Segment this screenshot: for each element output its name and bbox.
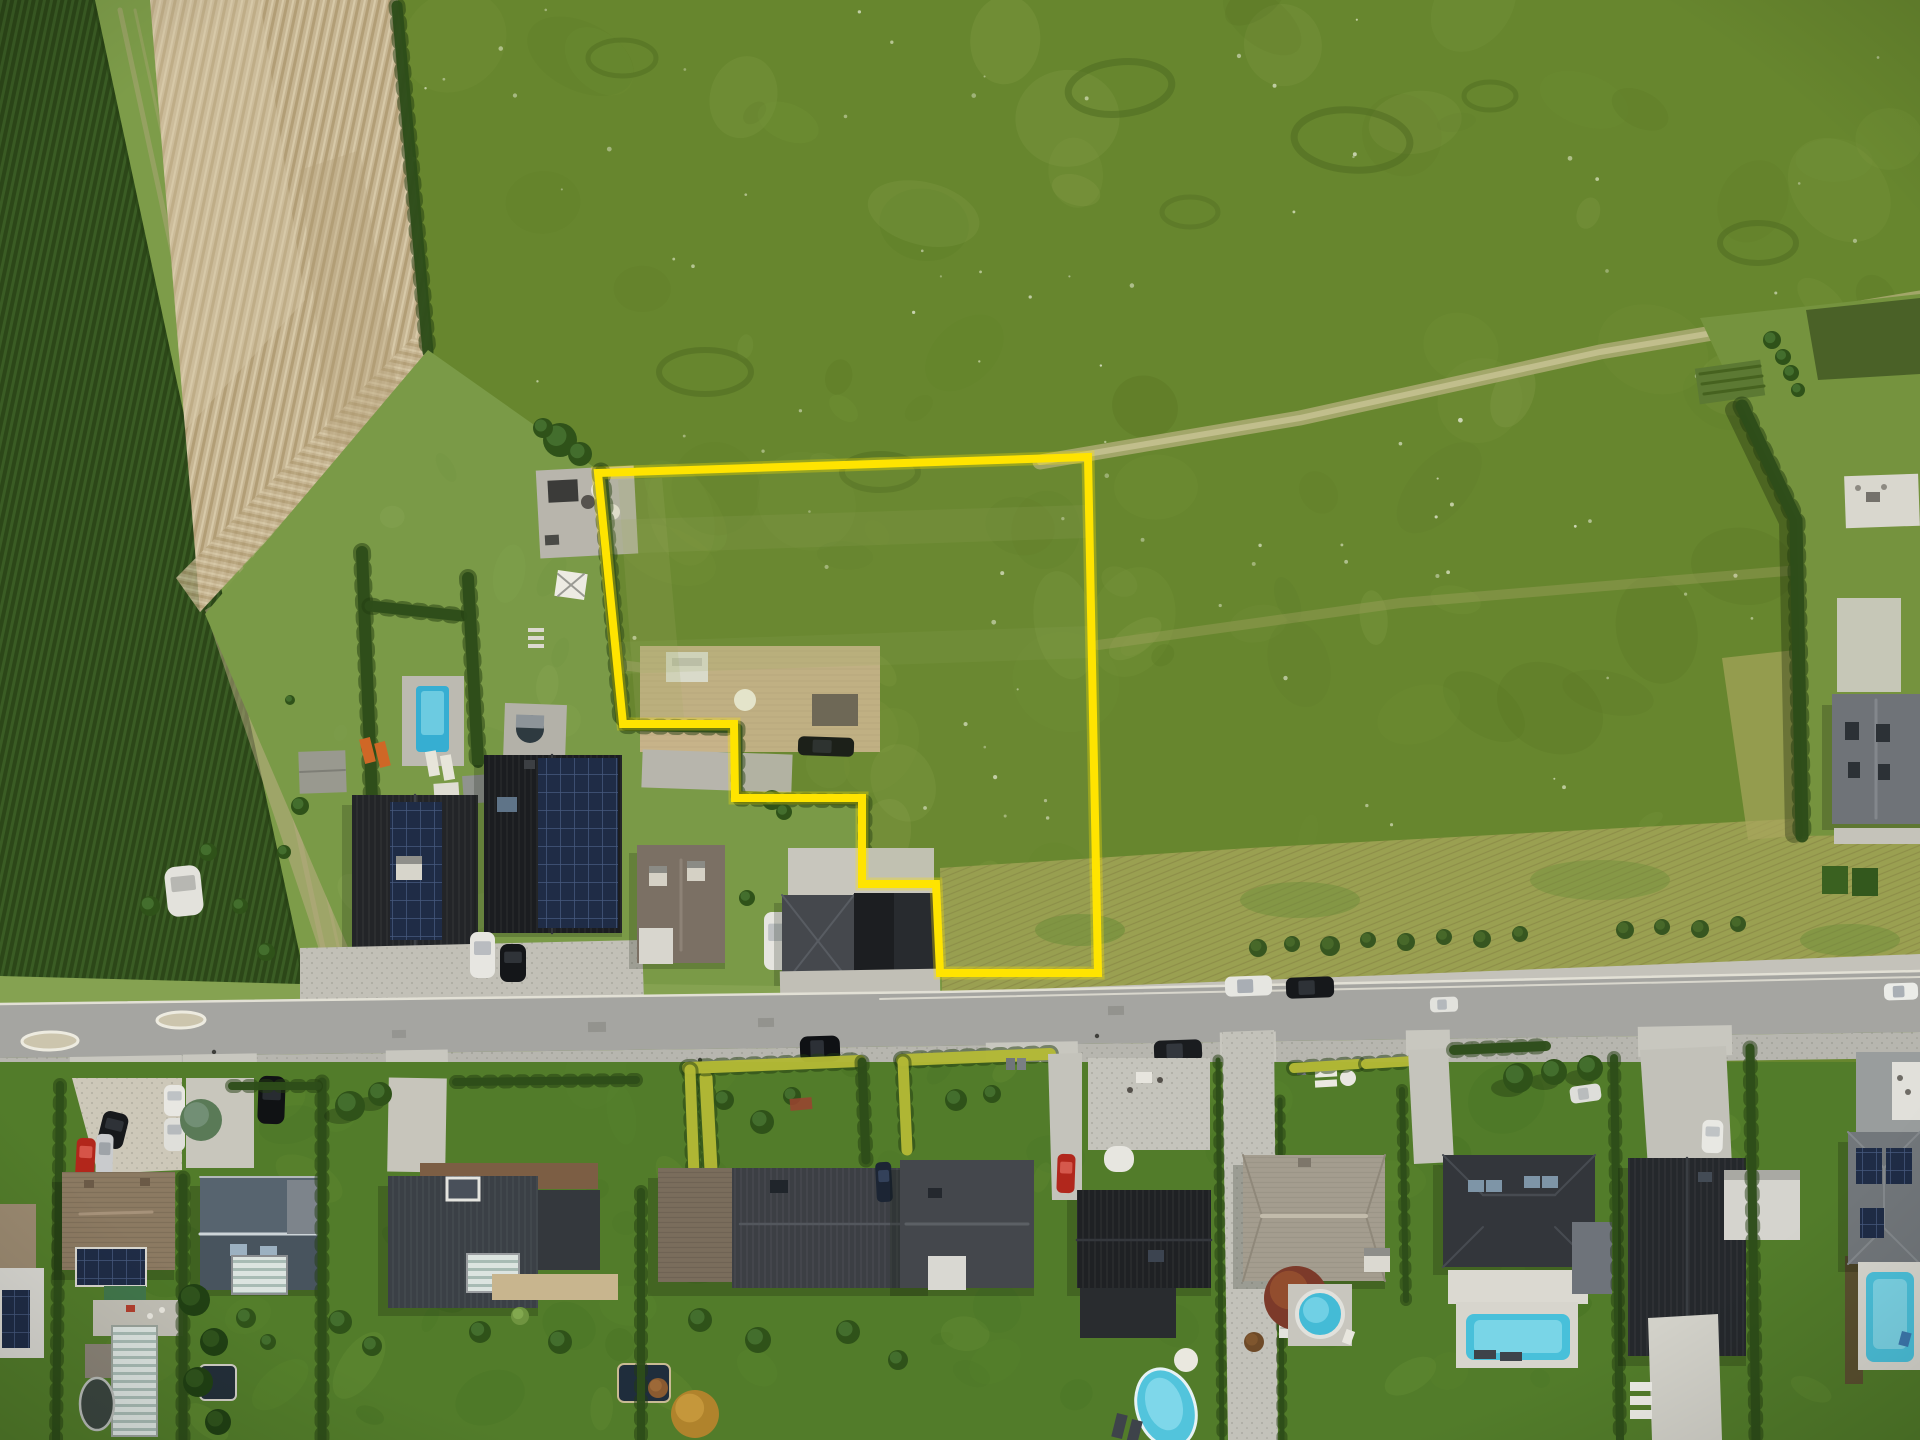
aerial-photo xyxy=(0,0,1920,1440)
aerial-scene xyxy=(0,0,1920,1440)
vignette xyxy=(0,0,1920,1440)
